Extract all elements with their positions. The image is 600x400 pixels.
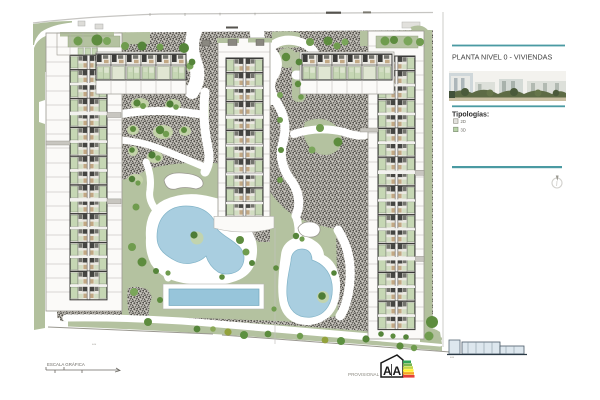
svg-text:2D: 2D	[461, 119, 466, 124]
svg-text:PROVISIONAL: PROVISIONAL	[348, 372, 380, 377]
svg-text:***: ***	[92, 343, 97, 347]
svg-text:PLANTA NIVEL 0 - VIVIENDAS: PLANTA NIVEL 0 - VIVIENDAS	[452, 53, 552, 62]
svg-text:***: ***	[450, 356, 455, 360]
svg-text:Tipologías:: Tipologías:	[452, 112, 489, 119]
svg-text:ESCALA GRÁFICA: ESCALA GRÁFICA	[47, 362, 85, 367]
svg-text:A: A	[383, 364, 392, 378]
svg-text:3D: 3D	[461, 127, 466, 132]
svg-text:A: A	[393, 364, 402, 378]
